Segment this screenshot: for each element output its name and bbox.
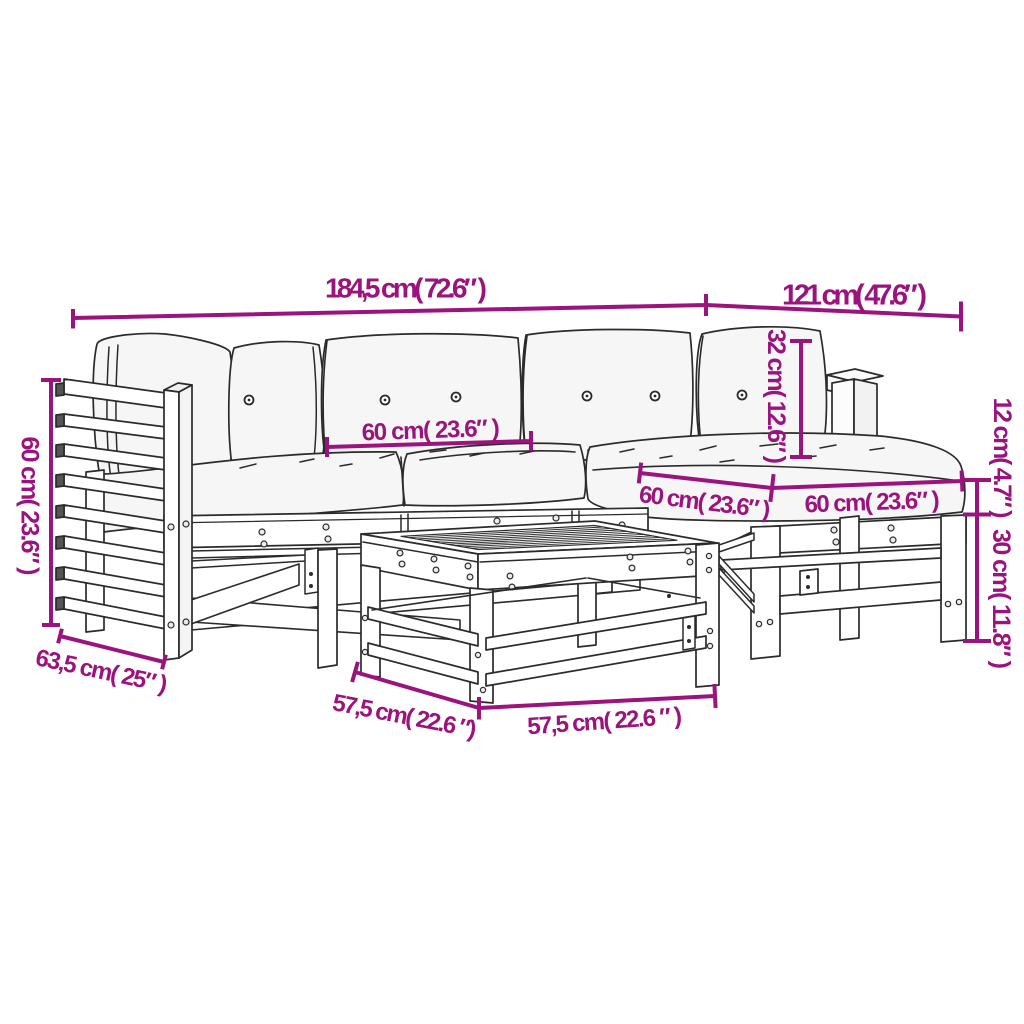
svg-text:32 cm( 12.6″ ): 32 cm( 12.6″ ) <box>762 329 790 464</box>
svg-text:12 cm( 4.7″ ): 12 cm( 4.7″ ) <box>988 398 1016 519</box>
svg-text:60 cm( 23.6″ ): 60 cm( 23.6″ ) <box>16 437 44 576</box>
svg-text:60 cm( 23.6″ ): 60 cm( 23.6″ ) <box>804 487 940 519</box>
svg-text:30 cm( 11.8″ ): 30 cm( 11.8″ ) <box>987 529 1015 669</box>
svg-text:184,5 cm( 72.6″ ): 184,5 cm( 72.6″ ) <box>325 273 487 304</box>
svg-text:121 cm( 47.6″ ): 121 cm( 47.6″ ) <box>782 280 927 312</box>
svg-text:60 cm( 23.6″ ): 60 cm( 23.6″ ) <box>361 415 500 447</box>
